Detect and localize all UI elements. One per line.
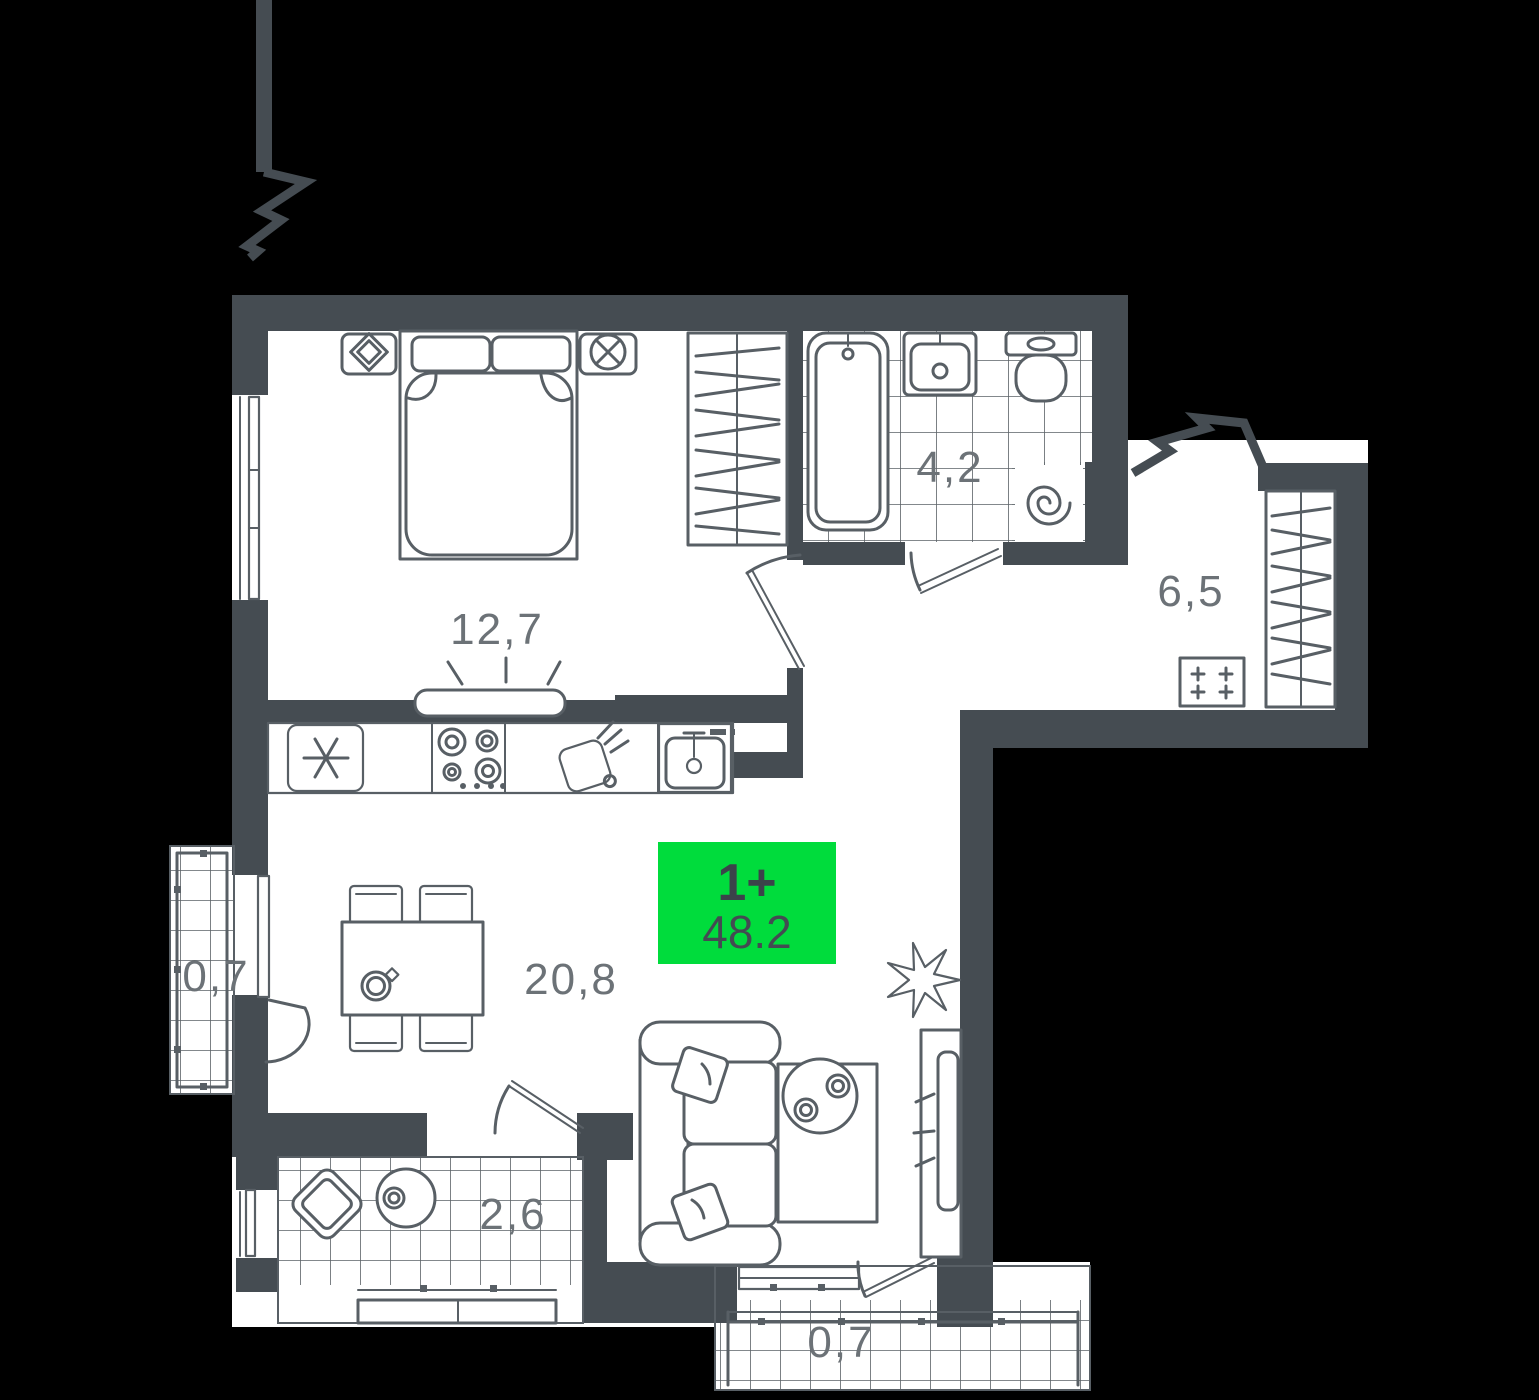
living-kitchen-area-label: 20,8 [524,955,618,1004]
wall-segment [787,668,803,778]
tv-console [914,1030,961,1257]
wall-segment [232,995,268,1113]
floor-plan-page: 12,7 4,2 6,5 20,8 0,7 2,6 0,7 1+ 48.2 [0,0,1539,1400]
wall-segment [232,295,1128,331]
wall-segment [960,710,1368,748]
balcony-bottom-tiles [715,1300,1090,1390]
bathtub [808,333,888,530]
wall-segment [583,1160,607,1283]
wall-segment [733,752,787,778]
wall-segment [236,1258,278,1292]
nightstand-lamp [342,334,396,374]
wall-segment [232,331,268,395]
sink-bathroom [904,333,976,395]
coffee-table [778,1059,877,1222]
wall-segment [960,710,993,1327]
badge-type-label: 1+ [717,854,776,912]
badge-area-value: 48.2 [702,906,792,958]
wardrobe-hallway [1266,491,1335,707]
dining-table [342,922,483,1015]
wall-segment [1085,462,1128,545]
bedroom-area-label: 12,7 [450,605,544,654]
shoe-cabinet [1180,658,1244,706]
wall-segment [615,695,803,723]
living-room-window [739,1267,859,1291]
nightstand-fan [580,334,636,374]
floor-plan-canvas: 12,7 4,2 6,5 20,8 0,7 2,6 0,7 1+ 48.2 [0,0,1539,1400]
wall-segment [236,1157,278,1190]
wall-segment [577,1113,633,1160]
balcony-left-area-label: 0,7 [182,952,249,1001]
dining-chair [420,886,472,924]
balcony-bottom-left-area-label: 2,6 [479,1190,546,1239]
corridor-floor [993,565,1128,710]
dining-chair [420,1013,472,1051]
furniture-kitchen [268,722,735,799]
washing-machine [1015,465,1083,542]
wardrobe-bedroom [688,333,787,545]
balcony-bottom-area-label: 0,7 [807,1318,874,1367]
sofa [640,1022,780,1265]
wall-segment [787,331,803,560]
area-badge: 1+ 48.2 [658,842,836,964]
wall-segment [232,1113,427,1157]
double-bed [400,331,577,559]
wall-segment [1003,542,1128,565]
sink-kitchen [659,724,735,792]
fridge [288,725,363,791]
wall-segment [1335,463,1368,747]
wall-segment [256,0,272,172]
bathroom-area-label: 4,2 [916,443,983,492]
wall-segment [1092,331,1128,463]
wall-segment [803,542,905,565]
wall-segment [232,723,268,875]
dining-chair [350,886,402,924]
dining-chair [350,1013,402,1051]
wall-break-zigzag-top-left [247,172,306,258]
side-table [377,1169,435,1227]
hallway-area-label: 6,5 [1157,567,1224,616]
